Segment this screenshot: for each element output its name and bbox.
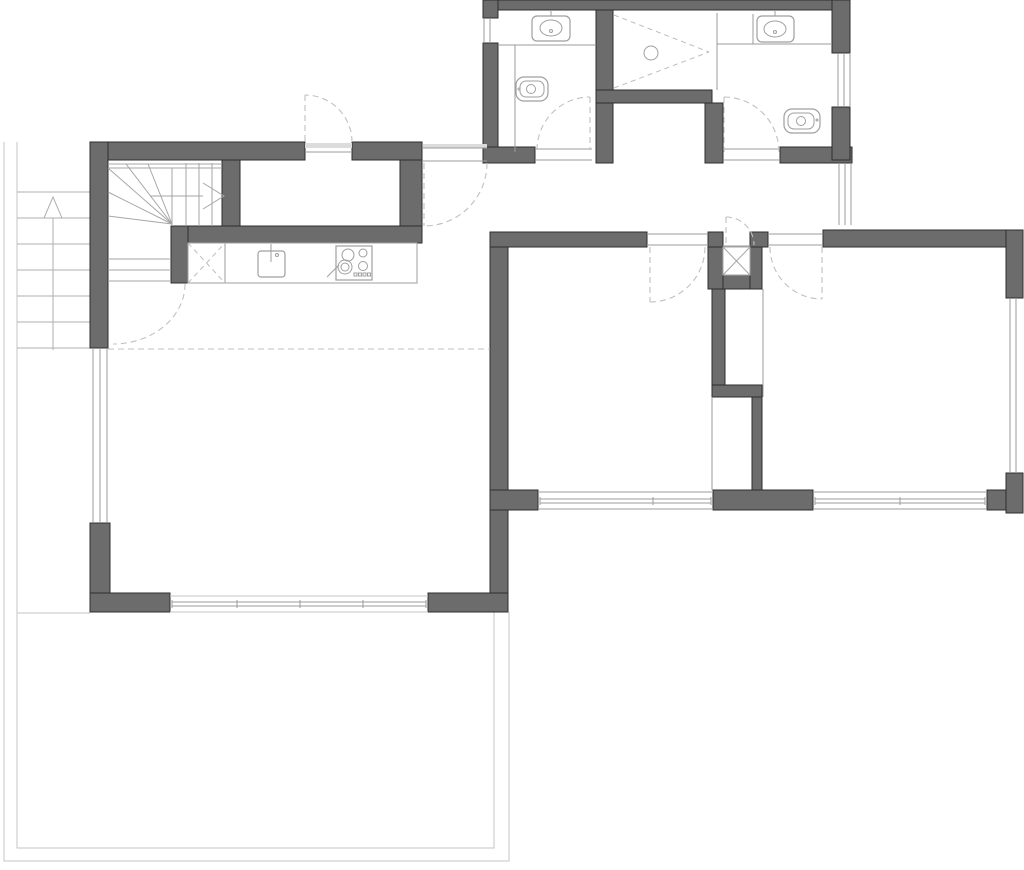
wall bbox=[712, 289, 725, 397]
wall bbox=[90, 142, 305, 160]
wall bbox=[832, 107, 850, 160]
door-threshold bbox=[305, 143, 352, 148]
door-swing-entry bbox=[424, 163, 487, 226]
terrace-inner-edge bbox=[17, 142, 494, 848]
duct-shaft bbox=[723, 246, 750, 275]
wall bbox=[1006, 230, 1023, 298]
wall bbox=[90, 142, 108, 348]
wall bbox=[752, 397, 762, 490]
wall bbox=[483, 0, 498, 18]
door-swing-bathroom-left bbox=[537, 97, 590, 150]
wall bbox=[352, 142, 422, 160]
wall bbox=[596, 10, 613, 163]
door-swing-storage bbox=[305, 95, 352, 142]
walls bbox=[90, 0, 1023, 612]
bathrooms bbox=[498, 11, 832, 152]
washbasin-icon bbox=[757, 16, 794, 42]
stair-winder bbox=[108, 216, 172, 224]
stair-direction-arrow-icon bbox=[203, 183, 224, 209]
wall bbox=[490, 232, 647, 247]
wall bbox=[490, 232, 508, 593]
door-swing-stair-hall bbox=[113, 284, 185, 344]
shower-slope-line bbox=[614, 15, 709, 52]
door-swing-bedroom1 bbox=[650, 247, 705, 302]
wall bbox=[832, 0, 850, 53]
kitchen-counter bbox=[188, 243, 417, 283]
floor-plan-page bbox=[0, 0, 1024, 870]
floor-plan-svg bbox=[0, 0, 1024, 870]
kitchen bbox=[188, 243, 417, 283]
wall bbox=[708, 232, 723, 247]
wall bbox=[596, 90, 712, 103]
stair-winder bbox=[148, 164, 172, 224]
wall bbox=[483, 0, 850, 10]
wall bbox=[428, 593, 508, 612]
shower-drain-icon bbox=[644, 46, 658, 60]
door-swing-bedroom2 bbox=[770, 247, 822, 299]
door-swing-bathroom-right bbox=[724, 97, 779, 152]
wall bbox=[90, 593, 170, 612]
wall bbox=[222, 160, 240, 226]
wall bbox=[705, 103, 723, 163]
shower-slope-line bbox=[614, 52, 709, 88]
wall bbox=[483, 43, 498, 152]
door-threshold bbox=[423, 144, 487, 148]
wall bbox=[1006, 473, 1023, 513]
terrace bbox=[4, 142, 509, 861]
wall bbox=[750, 247, 762, 289]
wall bbox=[171, 226, 188, 283]
wall bbox=[712, 385, 762, 397]
windows bbox=[93, 18, 1016, 612]
terrace-outer-edge bbox=[4, 142, 509, 861]
wall bbox=[723, 275, 750, 289]
stair-winder bbox=[108, 192, 172, 224]
wall bbox=[823, 230, 1023, 247]
wall bbox=[490, 490, 538, 510]
wall bbox=[708, 247, 723, 289]
stair-winder bbox=[126, 164, 172, 224]
wall bbox=[483, 147, 535, 163]
wall bbox=[750, 232, 768, 247]
wall bbox=[713, 490, 813, 510]
stair-up-arrow-icon bbox=[44, 197, 62, 218]
wall bbox=[172, 226, 422, 243]
